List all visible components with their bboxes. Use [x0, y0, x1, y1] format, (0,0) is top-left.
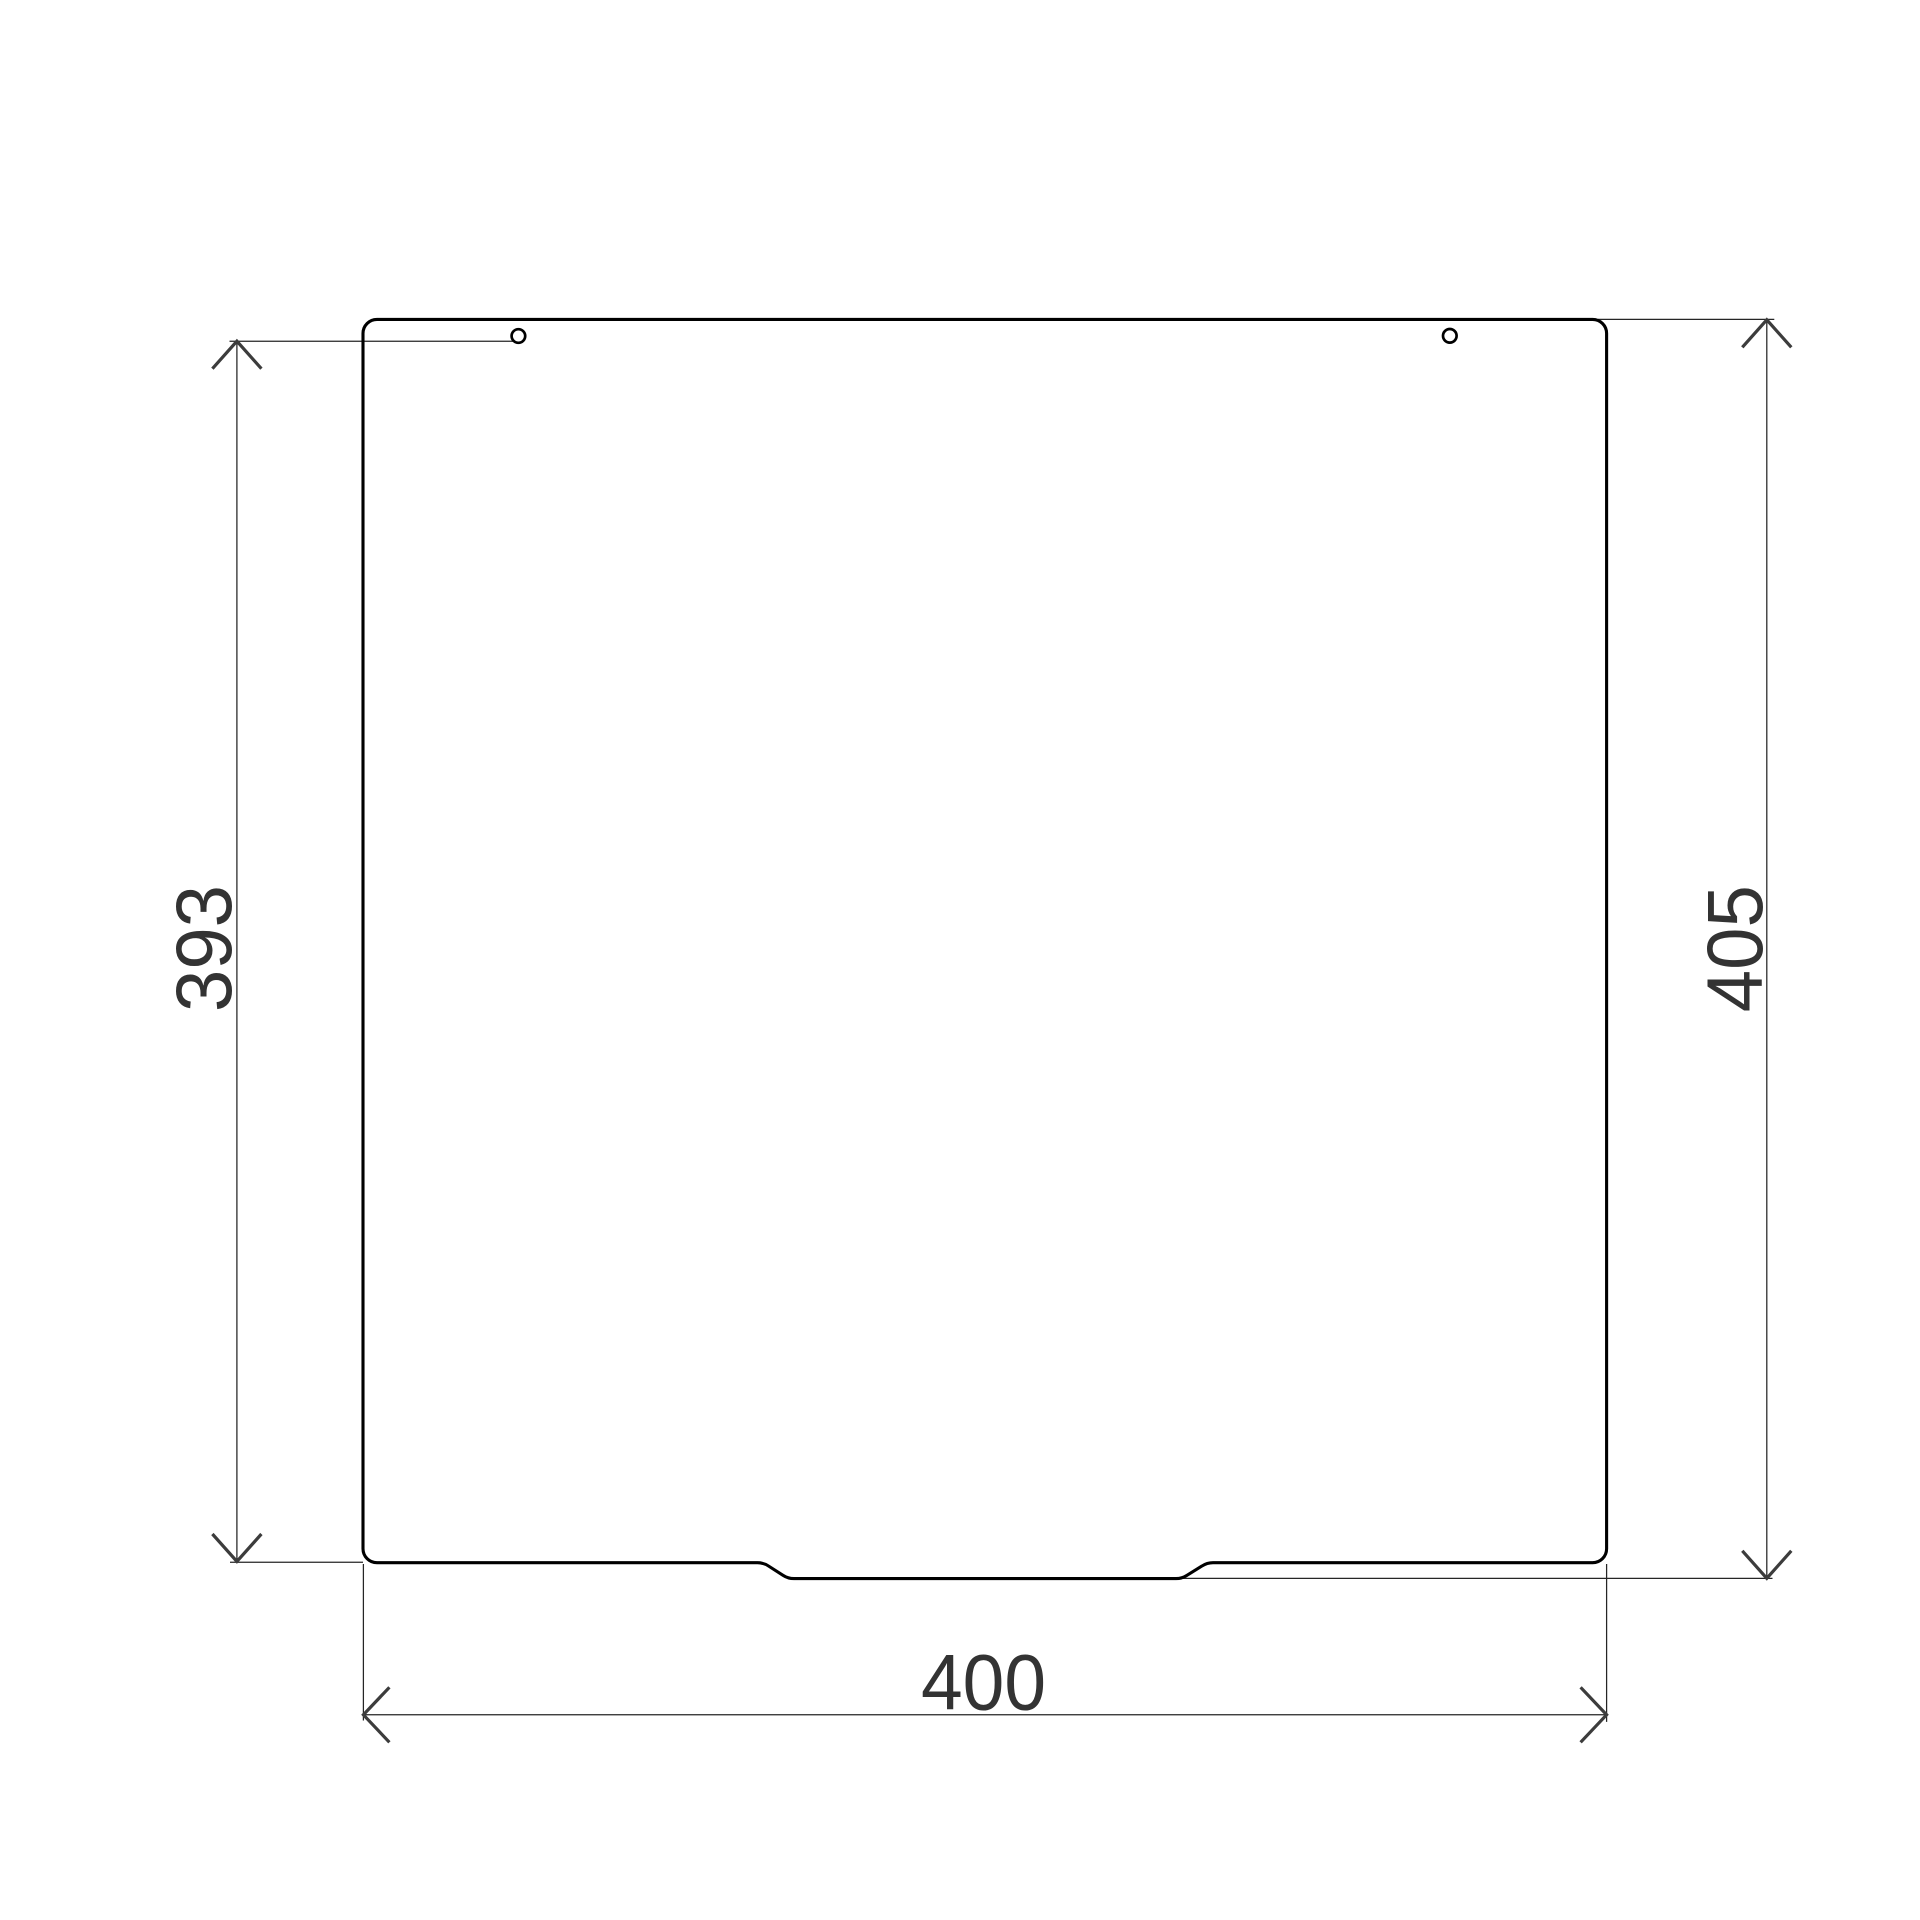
svg-text:393: 393: [159, 885, 248, 1012]
svg-text:405: 405: [1690, 885, 1779, 1012]
svg-text:400: 400: [921, 1638, 1046, 1727]
